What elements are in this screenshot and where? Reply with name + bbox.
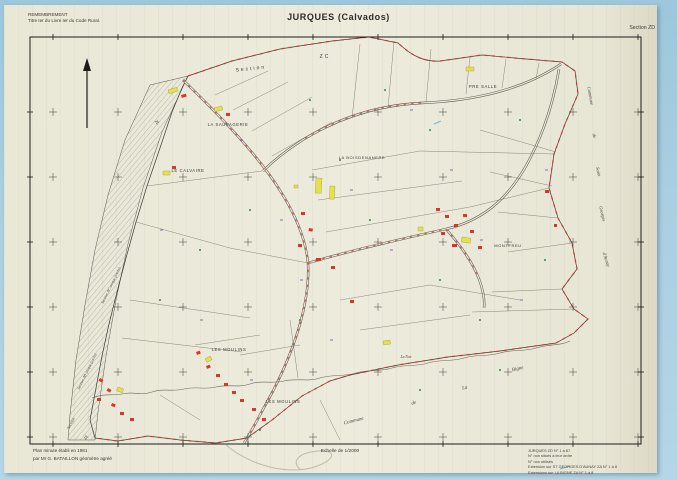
building-red [181, 94, 187, 98]
parcel-line [360, 315, 470, 330]
building-red [111, 403, 116, 407]
parcel-line [426, 49, 431, 102]
parcel-line [492, 289, 562, 292]
footer-author: Plan minute établi en 1981 par Mr G. BAT… [33, 447, 112, 462]
building-red [301, 212, 305, 215]
building-red [262, 418, 266, 421]
map-label: LES MOULINS [212, 347, 247, 352]
map-label: Commune [343, 416, 365, 426]
building-red [478, 246, 482, 249]
building-yellow [418, 227, 423, 231]
vegetation-mark [544, 259, 546, 261]
vegetation-mark [199, 249, 201, 251]
roads [183, 64, 561, 443]
vegetation-mark [479, 319, 481, 321]
vegetation-mark [299, 319, 301, 321]
footer-scale: Echelle de 1/2000 [240, 449, 440, 454]
map-label: Bigne [512, 366, 525, 373]
map-label: Saint [595, 167, 602, 178]
building-red [97, 398, 101, 401]
parcel-line [230, 248, 308, 263]
building-yellow [466, 67, 474, 71]
building-red [331, 266, 335, 269]
parcel-line [430, 285, 520, 300]
footer-author-line2: par Mr G. BATAILLON géomètre agréé [33, 455, 112, 463]
building-yellow [329, 186, 335, 199]
map-label: LA BOISDENANERE [339, 155, 386, 160]
building-red [350, 300, 354, 303]
building-red [463, 214, 467, 217]
parcel-line [130, 300, 250, 318]
building-red [240, 399, 244, 402]
footer-author-line1: Plan minute établi en 1981 [33, 447, 112, 455]
parcel-line [272, 122, 332, 156]
parcel-line [233, 82, 288, 110]
vegetation-mark [499, 369, 501, 371]
building-yellow [117, 387, 124, 393]
vegetation-mark [439, 279, 441, 281]
building-red [224, 383, 228, 386]
vegetation-mark [259, 429, 261, 431]
building-red [130, 418, 134, 421]
map-label: d'Aunay [602, 252, 612, 269]
vegetation-mark [429, 129, 431, 131]
building-red [120, 412, 124, 415]
vegetation-mark [159, 299, 161, 301]
map-label: Georges [598, 206, 607, 222]
map-label: LE CALVAIRE [172, 168, 205, 173]
building-red [554, 224, 557, 227]
stream [92, 341, 570, 398]
building-red [252, 408, 256, 411]
hatched-boundary-band [68, 76, 188, 440]
parcel-line [480, 130, 556, 152]
map-label: Section [235, 64, 266, 73]
building-red [232, 391, 236, 394]
building-red [445, 215, 449, 218]
parcel-line [318, 181, 462, 200]
building-red [454, 224, 458, 227]
vegetation-mark [309, 99, 311, 101]
building-red [308, 228, 312, 232]
map-label: Commune [586, 86, 594, 105]
building-yellow [315, 178, 322, 193]
vegetation-mark [249, 209, 251, 211]
building-yellow [205, 356, 212, 362]
map-label: PRE SALLE [469, 84, 497, 89]
road-red-dashes [183, 80, 479, 443]
building-red [470, 230, 474, 233]
map-label: La [461, 386, 469, 392]
building-yellow [214, 106, 223, 112]
map-label: LA SAUVAGERIE [208, 122, 249, 127]
building-yellow [163, 171, 170, 175]
building-red [107, 388, 112, 393]
map-label: de [411, 400, 418, 406]
building-red [452, 244, 457, 247]
vegetation-mark [369, 219, 371, 221]
building-yellow [294, 185, 298, 188]
building-red [216, 374, 220, 377]
building-red [298, 244, 302, 247]
parcel-line [498, 212, 558, 218]
parcel-line [388, 41, 394, 108]
building-red [545, 190, 549, 193]
parcel-line [352, 44, 360, 118]
parcel-line [312, 151, 420, 170]
parcel-line [215, 71, 268, 95]
map-label: ZC [320, 54, 331, 60]
building-red [441, 232, 445, 235]
building-red [226, 113, 230, 116]
map-label: LES MOULINS [266, 399, 301, 404]
blue-crayon-mark2 [434, 121, 441, 124]
vegetation-mark [384, 89, 386, 91]
building-red [436, 208, 440, 211]
parcel-line [252, 97, 312, 131]
building-red [196, 351, 201, 355]
building-yellow [383, 340, 390, 345]
parcel-line [340, 285, 430, 300]
map-label: La Noe [399, 355, 411, 359]
cadastral-map: SectionZCZLLA SAUVAGERIELE CALVAIRELA BO… [0, 0, 677, 480]
footer-notes: JURQUES ZD N° 1 à 87N° non situés à leur… [528, 448, 617, 475]
footer-note-line: Extension sur ST GEORGES D'AUNAY ZA N° 1… [528, 464, 617, 469]
north-arrow [83, 58, 91, 128]
pencil-scribble [225, 444, 332, 470]
vegetation-mark [519, 119, 521, 121]
parcel-line [320, 400, 340, 440]
building-red [316, 258, 321, 261]
parcel-line [160, 395, 200, 420]
footer-note-line: Extensions sur LA BIGNE ZA N° 1 à 8 [528, 470, 617, 475]
building-yellow [461, 237, 471, 243]
map-label: MONTFREU [494, 243, 521, 248]
vegetation-mark [419, 389, 421, 391]
parcel-line [472, 309, 574, 312]
parcel-line [502, 59, 506, 88]
building-red [206, 365, 211, 369]
parcel-line [195, 335, 260, 345]
map-label: de [592, 133, 598, 138]
